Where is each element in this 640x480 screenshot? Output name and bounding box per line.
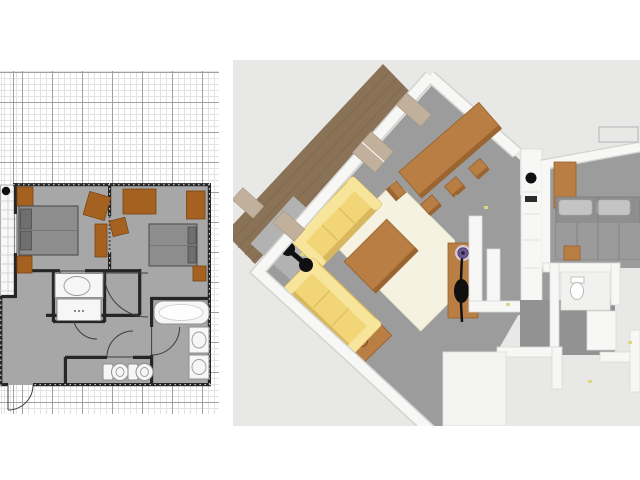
double-bed-left[interactable] [19,206,78,255]
toilet-3d-bowl [571,283,584,300]
plan-2d [0,183,211,410]
floor-planner-window: 2D floor plan with grid 3D aerial view o… [0,0,640,480]
double-bed-right[interactable] [149,224,197,266]
door-entrance [8,385,33,410]
kitchen-counter[interactable] [521,149,542,307]
sink-counter [55,274,103,298]
toilet-2-bowl [136,364,153,381]
nightstand-3d[interactable] [564,246,580,260]
plan-corner-marker [2,187,10,195]
desk-right[interactable] [123,189,156,214]
chair-square[interactable] [109,217,128,236]
bathroom-fixtures[interactable] [55,274,103,321]
wc-fixtures[interactable] [103,364,153,381]
bed-mat-top[interactable] [17,187,33,206]
view-3d [225,64,640,460]
side-shelf[interactable] [95,224,107,257]
scene-drawing [0,0,640,480]
toilet-1-bowl [112,364,129,381]
nightstand-2d[interactable] [193,266,206,281]
bath-block-exterior [443,352,506,426]
kitchen-sink[interactable] [525,196,537,202]
wc-room-floor [561,272,610,310]
bedroom-window-frame [599,127,638,142]
cooktop[interactable] [526,173,537,184]
shower [57,299,101,321]
wardrobe-2d[interactable] [187,191,206,219]
bed-mat-bottom[interactable] [17,256,32,273]
